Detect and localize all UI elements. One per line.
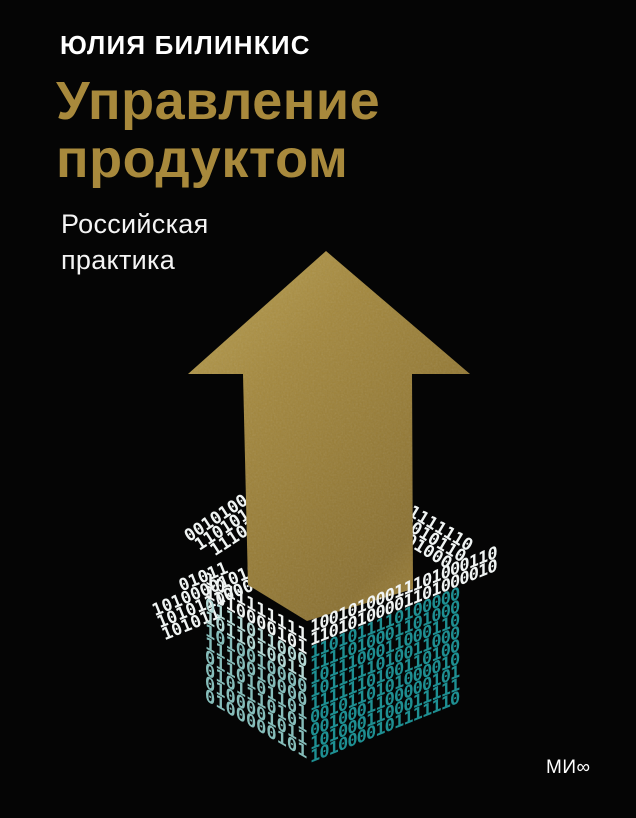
publisher-logo-mif: МИ∞ bbox=[546, 757, 591, 779]
book-cover: ЮЛИЯ БИЛИНКИС Управление продуктом Росси… bbox=[0, 0, 636, 818]
gold-arrow-texture bbox=[188, 251, 470, 621]
